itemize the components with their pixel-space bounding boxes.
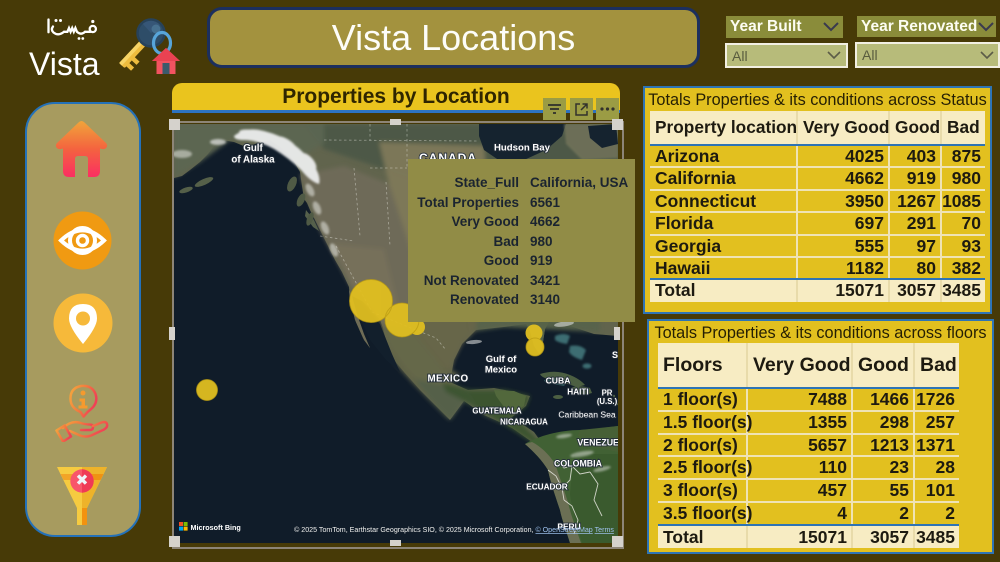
svg-text:S: S — [612, 350, 618, 360]
svg-text:VENEZUELA: VENEZUELA — [577, 438, 618, 448]
svg-text:GUATEMALA: GUATEMALA — [472, 407, 522, 416]
svg-text:Gulf: Gulf — [243, 143, 263, 154]
svg-text:Gulf of: Gulf of — [486, 354, 517, 365]
svg-text:Caribbean Sea: Caribbean Sea — [558, 410, 616, 420]
svg-text:MEXICO: MEXICO — [427, 374, 468, 385]
svg-text:CUBA: CUBA — [546, 376, 571, 386]
svg-text:© 2025 TomTom, Earthstar Geogr: © 2025 TomTom, Earthstar Geographics SIO… — [294, 526, 614, 534]
svg-text:of Alaska: of Alaska — [231, 155, 275, 166]
svg-text:NICARAGUA: NICARAGUA — [500, 418, 548, 427]
svg-text:HAITI: HAITI — [567, 388, 588, 397]
svg-text:Microsoft Bing: Microsoft Bing — [191, 523, 241, 532]
svg-text:Hudson Bay: Hudson Bay — [494, 143, 551, 154]
svg-text:COLOMBIA: COLOMBIA — [554, 459, 603, 469]
svg-text:Mexico: Mexico — [485, 365, 517, 376]
svg-text:ECUADOR: ECUADOR — [526, 483, 567, 492]
svg-text:(U.S.): (U.S.) — [597, 397, 618, 406]
